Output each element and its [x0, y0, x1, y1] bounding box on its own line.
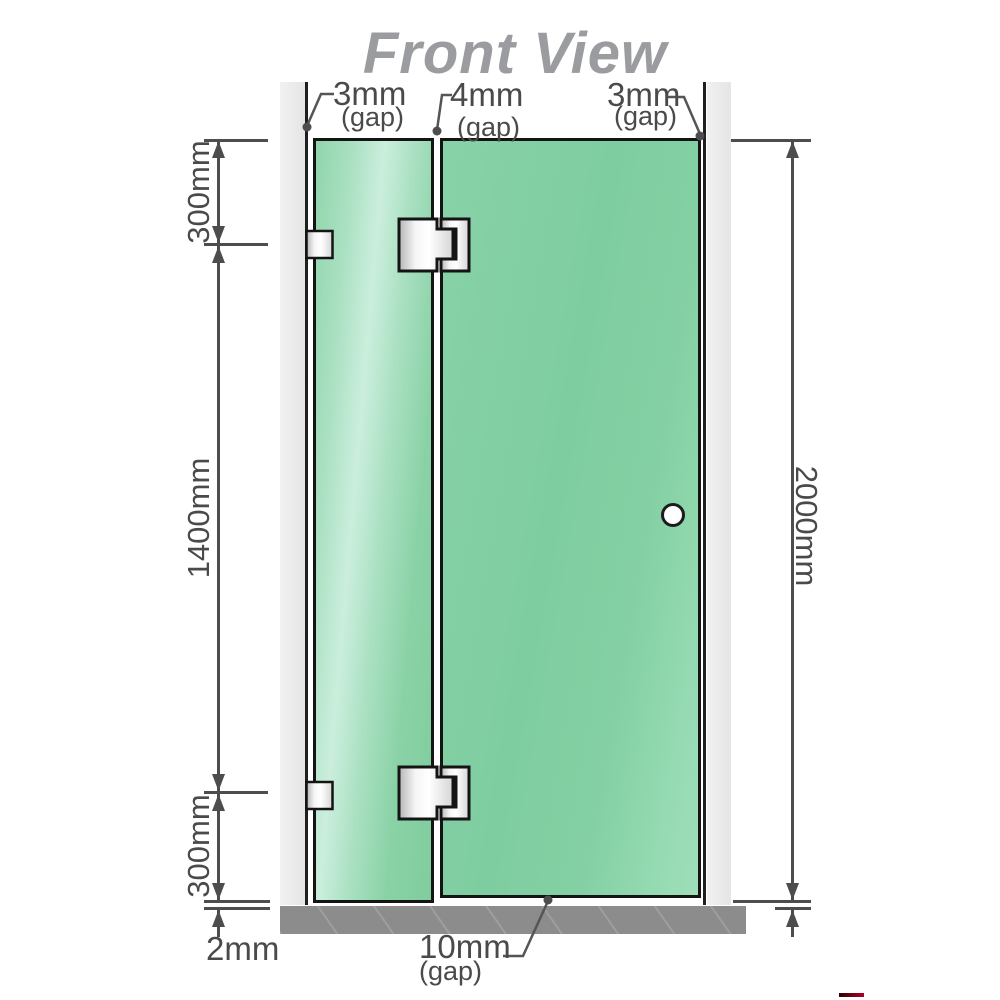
dim-label-left-top: 300mm [181, 140, 217, 243]
gap-label-top-right-note: (gap) [614, 103, 677, 130]
wall-left-edge-line [305, 82, 308, 905]
wall-left [280, 82, 305, 905]
logo-fragment [839, 993, 864, 997]
gap-label-top-middle-note: (gap) [457, 114, 520, 141]
fixed-glass-panel [313, 138, 434, 903]
wall-right [707, 82, 731, 905]
dim-label-right-total: 2000mm [788, 466, 824, 587]
door-handle-knob [661, 503, 685, 527]
gap-label-floor-value: 2mm [206, 932, 279, 965]
front-view-diagram: Front View [0, 0, 1000, 1000]
wall-right-edge-line [703, 82, 706, 905]
gap-label-top-left-note: (gap) [341, 104, 404, 131]
floor-base [280, 906, 746, 934]
gap-label-door-bottom-note: (gap) [419, 958, 482, 985]
gap-label-top-middle-value: 4mm [450, 78, 523, 111]
dim-label-left-bottom: 300mm [181, 794, 217, 897]
dim-label-left-middle: 1400mm [181, 458, 217, 579]
